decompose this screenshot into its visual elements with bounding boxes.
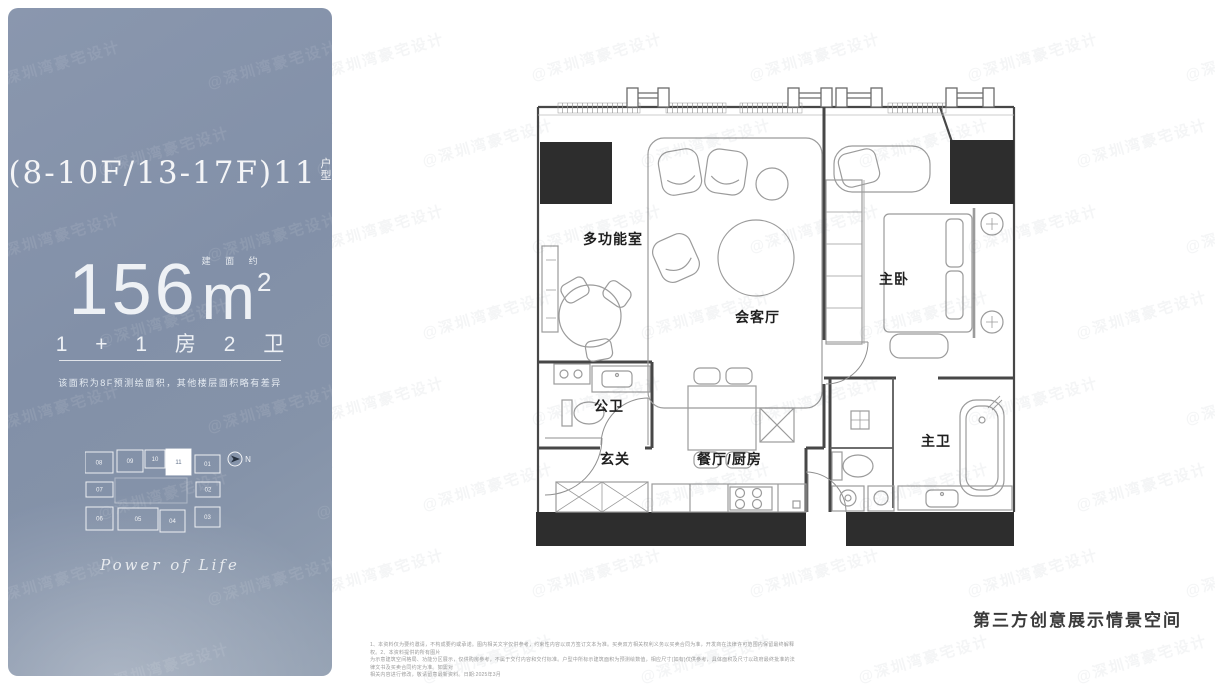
room-count-text: 1 + 1 房 2 卫 xyxy=(8,328,332,358)
north-arrow-icon: N xyxy=(228,452,251,466)
window-hatches xyxy=(558,103,946,113)
svg-text:04: 04 xyxy=(169,519,176,525)
area-unit: m2 xyxy=(202,269,272,325)
public-bath-fixtures xyxy=(554,364,650,426)
divider-line xyxy=(59,360,281,361)
scene-caption: 第三方创意展示情景空间 xyxy=(973,606,1182,631)
floorplan-poster: { "sidebar": { "unit_title": "(8-10F/13-… xyxy=(0,0,1215,684)
room-label-master-bath: 主卫 xyxy=(921,431,951,451)
legal-disclaimer: 1、本资料仅为要约邀请，不构成要约或承诺。图内相关文字仅供参考，约束性内容以双方… xyxy=(370,642,798,680)
area-note: 该面积为8F预测绘面积，其他楼层面积略有差异 xyxy=(8,376,332,389)
room-label-public-bath: 公卫 xyxy=(594,396,624,416)
area-value: 156 xyxy=(69,255,198,325)
svg-text:10: 10 xyxy=(152,457,159,463)
svg-text:06: 06 xyxy=(96,517,103,523)
svg-text:N: N xyxy=(245,455,251,464)
svg-text:08: 08 xyxy=(96,461,103,467)
unit-type-label: 户 型 xyxy=(321,158,332,182)
key-plan: 08 09 10 11 01 07 02 06 05 04 03 N xyxy=(85,448,255,543)
multifunction-furniture xyxy=(542,246,633,362)
svg-text:01: 01 xyxy=(204,462,211,468)
svg-text:05: 05 xyxy=(135,517,142,523)
room-label-dining-kitchen: 餐厅/厨房 xyxy=(697,449,762,469)
master-bath-fixtures xyxy=(832,396,1012,511)
unit-title: (8-10F/13-17F)11 户 型 xyxy=(8,155,332,191)
room-label-multifunction: 多功能室 xyxy=(583,229,643,249)
svg-text:03: 03 xyxy=(204,515,211,521)
info-sidebar: @深圳湾豪宅设计@深圳湾豪宅设计@深圳湾豪宅设计@深圳湾豪宅设计@深圳湾豪宅设计… xyxy=(8,8,332,676)
structural-cores xyxy=(536,140,1014,546)
brand-slogan: Power of Life xyxy=(8,556,332,574)
keyplan-unit-11: 11 xyxy=(175,460,182,466)
unit-title-text: (8-10F/13-17F)11 xyxy=(8,155,316,191)
svg-text:09: 09 xyxy=(127,459,134,465)
area-display: 156 建 面 约 m2 xyxy=(8,254,332,325)
room-label-living: 会客厅 xyxy=(735,307,780,327)
dining-kitchen-furniture xyxy=(556,368,806,512)
svg-text:02: 02 xyxy=(205,488,212,494)
room-label-foyer: 玄关 xyxy=(600,449,630,469)
svg-text:07: 07 xyxy=(96,488,103,494)
room-label-master-bedroom: 主卧 xyxy=(879,269,909,289)
